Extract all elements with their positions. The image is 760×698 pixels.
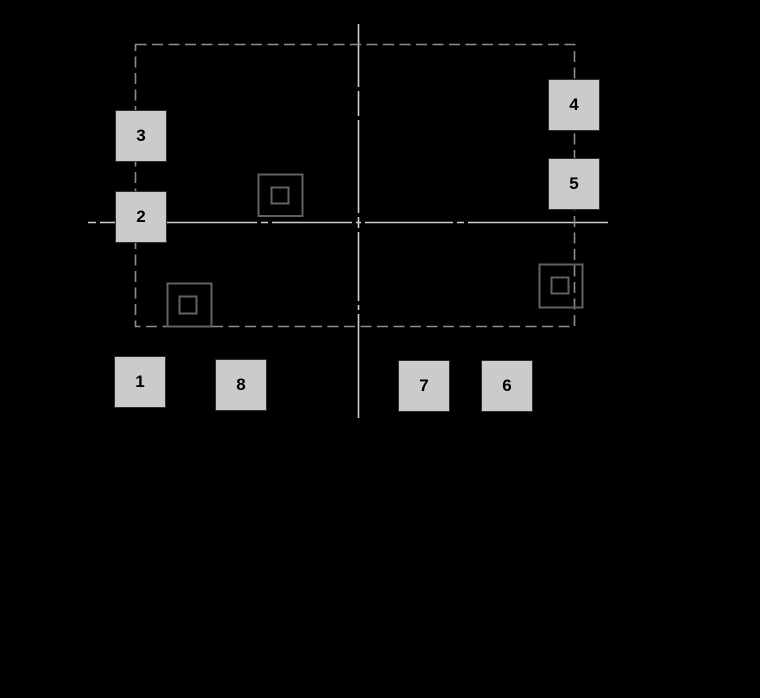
- pad-label-1: 1: [135, 372, 144, 392]
- drawing-layer: [0, 0, 760, 698]
- pad-label-6: 6: [502, 376, 511, 396]
- marker-bottom-left: [168, 284, 212, 327]
- pad-label-8: 8: [236, 375, 245, 395]
- pad-label-4: 4: [569, 95, 578, 115]
- pad-box-6[interactable]: 6: [481, 360, 533, 412]
- pad-label-3: 3: [136, 126, 145, 146]
- pad-box-4[interactable]: 4: [548, 79, 600, 131]
- pad-label-2: 2: [136, 207, 145, 227]
- marker-right: [540, 265, 583, 308]
- pad-box-1[interactable]: 1: [114, 356, 166, 408]
- pad-box-8[interactable]: 8: [215, 359, 267, 411]
- pad-label-7: 7: [419, 376, 428, 396]
- footprint-canvas: 1 2 3 4 5 6 7 8: [0, 0, 760, 698]
- marker-top-center: [259, 175, 303, 217]
- pad-box-2[interactable]: 2: [115, 191, 167, 243]
- pad-box-7[interactable]: 7: [398, 360, 450, 412]
- pad-box-5[interactable]: 5: [548, 158, 600, 210]
- pad-label-5: 5: [569, 174, 578, 194]
- pad-box-3[interactable]: 3: [115, 110, 167, 162]
